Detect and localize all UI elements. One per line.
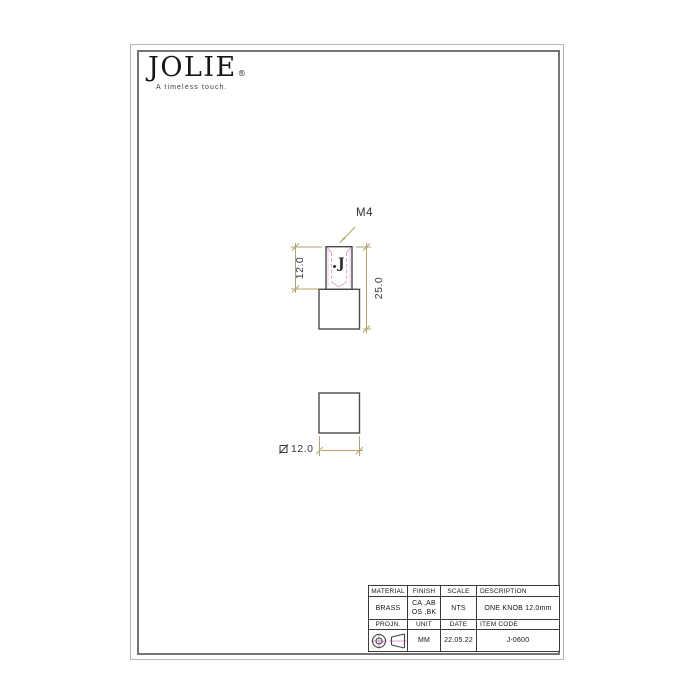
engraving-dot (333, 265, 336, 268)
header-unit: UNIT (408, 620, 441, 630)
total-height-dimension-label: 25.0 (373, 275, 385, 301)
base-width-value: 12.0 (291, 443, 313, 455)
value-finish: CA ,AB OS ,BK (408, 597, 441, 620)
brand-logo: JOLIE® A timeless touch. (148, 54, 246, 91)
engraved-logo-mark: J (331, 256, 351, 276)
logo-text: JOLIE (148, 52, 237, 83)
header-material: MATERIAL (369, 586, 408, 597)
drawing-sheet-page: JOLIE® A timeless touch. (0, 0, 700, 700)
header-projection: PROJN. (369, 620, 408, 630)
sheet-inner-border (137, 50, 560, 655)
square-symbol-icon (279, 444, 289, 454)
value-scale: NTS (441, 597, 477, 620)
value-finish-line2: OS ,BK (412, 608, 437, 617)
third-angle-projection-icon (370, 631, 407, 651)
value-description: ONE KNOB 12.0mm (477, 597, 559, 620)
title-block: MATERIAL FINISH SCALE DESCRIPTION BRASS … (368, 585, 560, 652)
header-item-code: ITEM CODE (477, 620, 559, 630)
value-item-code: J-0600 (477, 630, 559, 651)
engraving-letter: J (338, 256, 345, 272)
header-date: DATE (441, 620, 477, 630)
neck-height-dimension-label: 12.0 (294, 255, 306, 281)
base-width-dimension-label: 12.0 (279, 443, 313, 455)
logo-tagline: A timeless touch. (156, 84, 246, 91)
value-material: BRASS (369, 597, 408, 620)
value-date: 22.05.22 (441, 630, 477, 651)
header-finish: FINISH (408, 586, 441, 597)
logo-wordmark: JOLIE® (148, 54, 246, 81)
value-unit: MM (408, 630, 441, 651)
value-projection (369, 630, 408, 651)
header-description: DESCRIPTION (477, 586, 559, 597)
thread-size-label: M4 (356, 207, 373, 219)
value-finish-line1: CA ,AB (412, 599, 436, 608)
registered-mark: ® (238, 69, 246, 78)
header-scale: SCALE (441, 586, 477, 597)
